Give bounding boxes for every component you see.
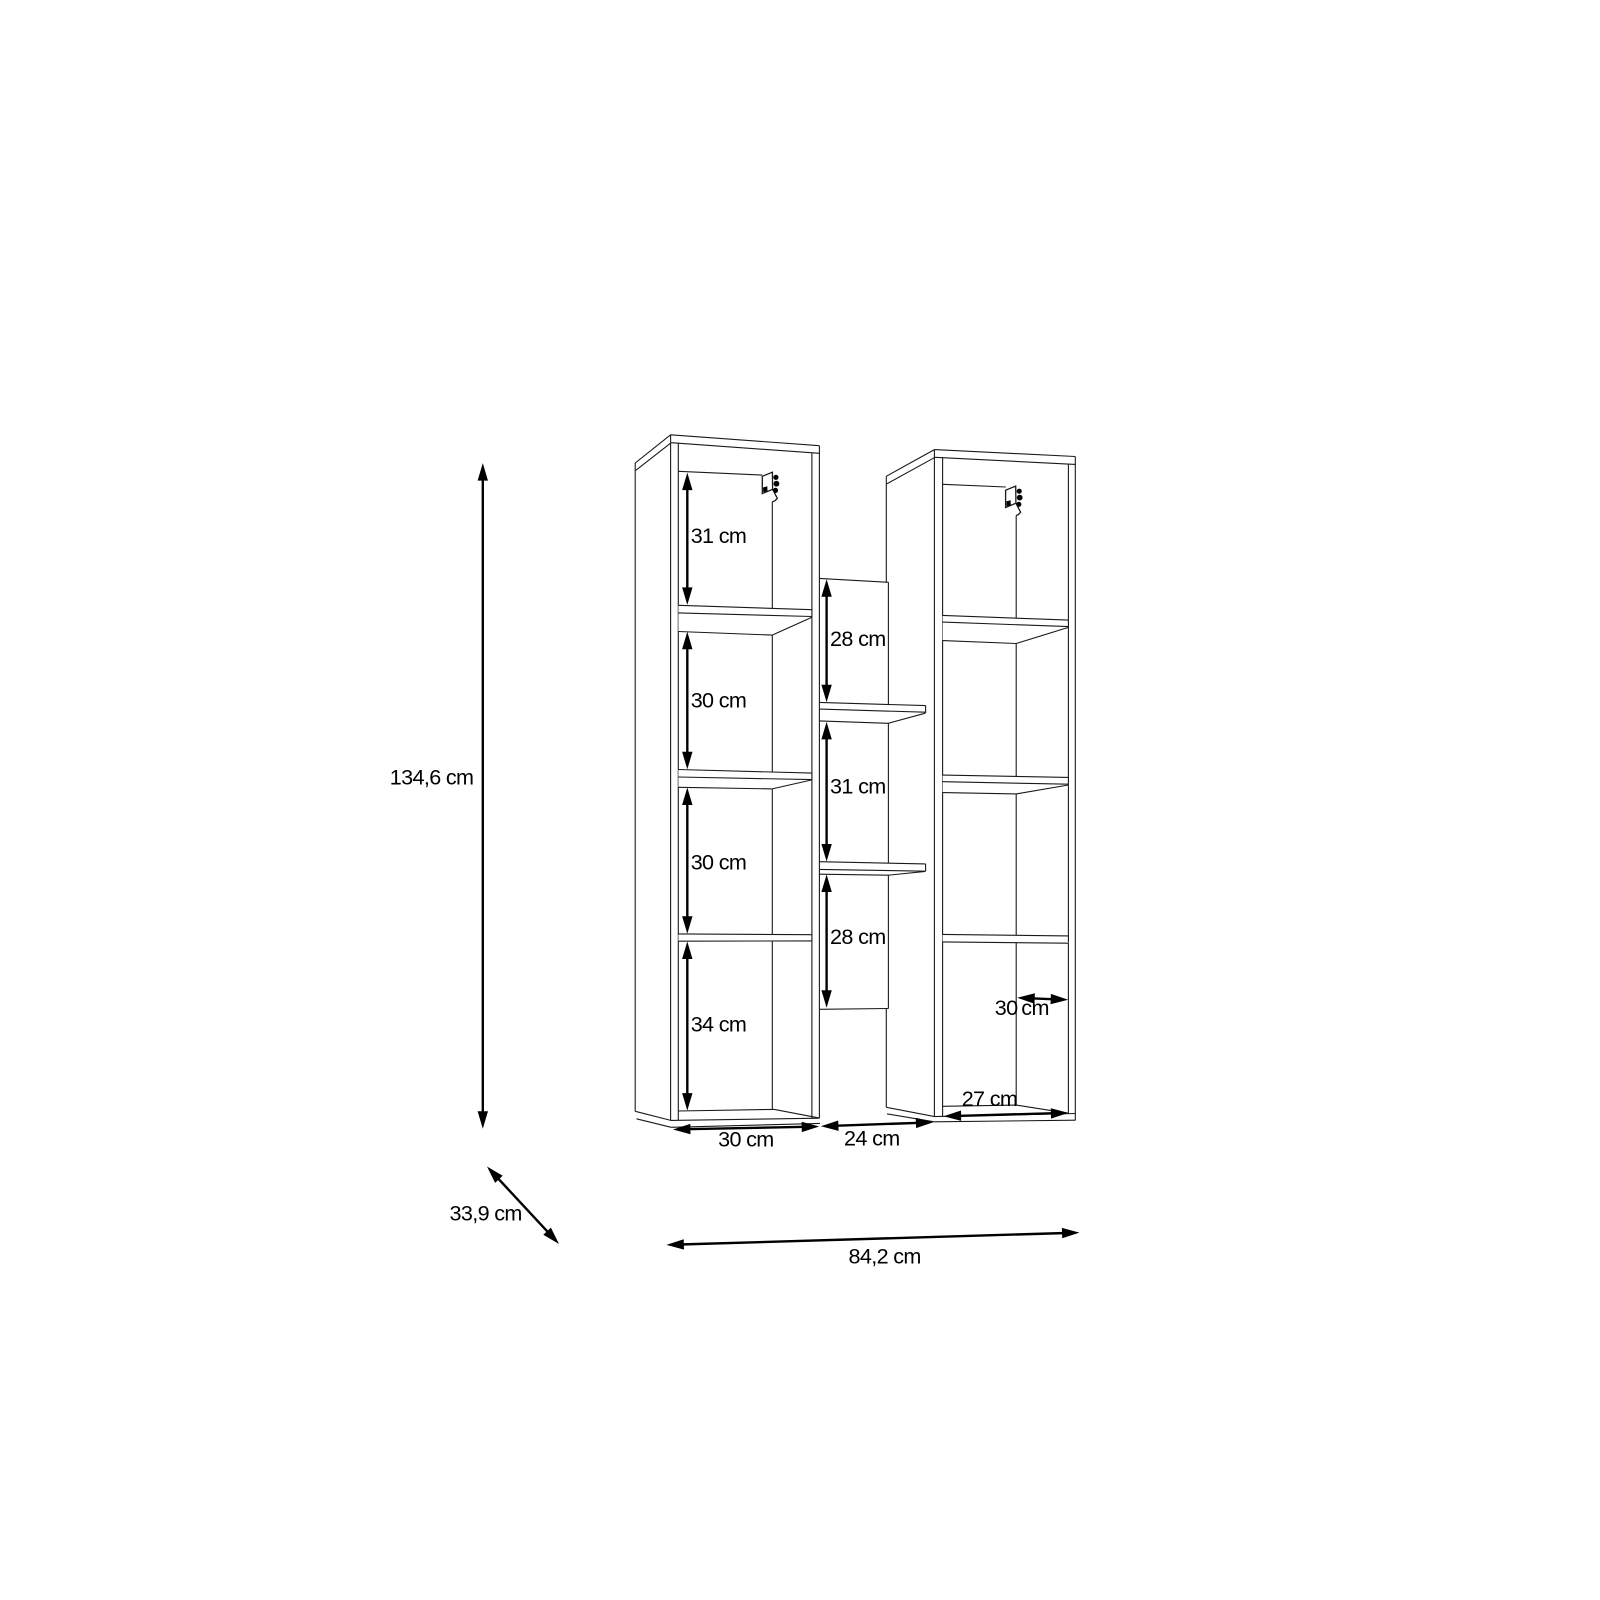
svg-text:28 cm: 28 cm [830, 626, 886, 651]
svg-text:30: 30 [995, 995, 1018, 1020]
svg-text:34 cm: 34 cm [691, 1011, 747, 1036]
svg-text:27 cm: 27 cm [962, 1086, 1018, 1111]
svg-text:cm: cm [1021, 995, 1049, 1020]
svg-text:28 cm: 28 cm [830, 924, 886, 949]
svg-text:24 cm: 24 cm [844, 1125, 900, 1150]
svg-text:30 cm: 30 cm [718, 1127, 774, 1152]
svg-text:30 cm: 30 cm [691, 688, 747, 713]
svg-text:31 cm: 31 cm [691, 523, 747, 548]
svg-text:31 cm: 31 cm [830, 774, 886, 799]
svg-text:30 cm: 30 cm [691, 849, 747, 874]
svg-text:134,6 cm: 134,6 cm [390, 764, 474, 789]
svg-text:84,2 cm: 84,2 cm [849, 1244, 921, 1269]
svg-text:33,9 cm: 33,9 cm [450, 1201, 522, 1226]
